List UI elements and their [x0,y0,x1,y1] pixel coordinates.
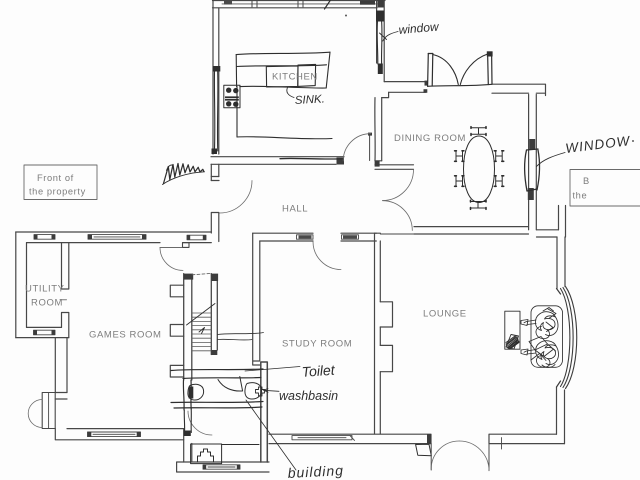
svg-text:HALL: HALL [282,204,308,215]
svg-text:the: the [573,191,588,201]
svg-text:Front of: Front of [37,173,74,183]
svg-text:B: B [583,176,590,186]
svg-text:GAMES ROOM: GAMES ROOM [89,330,162,341]
svg-text:UTILITY: UTILITY [25,284,65,295]
svg-text:SINK.: SINK. [295,93,326,107]
svg-text:LOUNGE: LOUNGE [423,309,467,320]
svg-text:washbasin: washbasin [279,389,338,403]
svg-text:Toilet: Toilet [301,362,336,380]
svg-text:the property: the property [29,187,86,197]
svg-text:STUDY ROOM: STUDY ROOM [282,339,352,350]
svg-text:ROOM: ROOM [31,298,63,309]
svg-text:building: building [287,462,344,480]
svg-text:DINING ROOM: DINING ROOM [394,133,466,144]
svg-text:KITCHEN: KITCHEN [272,72,318,83]
